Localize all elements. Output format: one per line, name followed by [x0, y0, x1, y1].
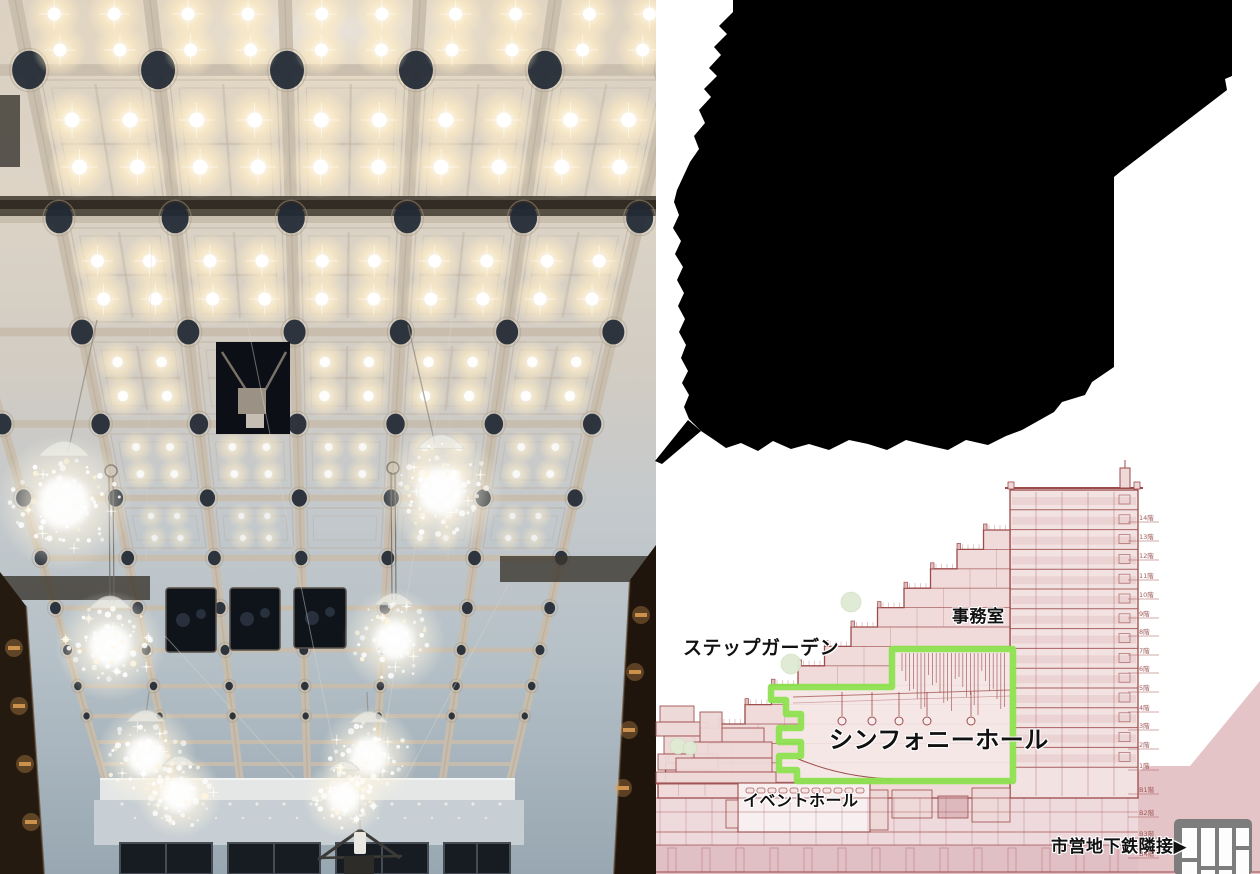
black-silhouette	[655, 0, 1260, 470]
subway-station-icon	[1174, 819, 1252, 874]
building-cross-section-diagram	[655, 460, 1260, 874]
page: ステップガーデン 事務室 シンフォニーホール イベントホール 市営地下鉄隣接▶ …	[0, 0, 1260, 874]
ceiling-photo	[0, 0, 656, 874]
office-tower	[1005, 460, 1143, 798]
